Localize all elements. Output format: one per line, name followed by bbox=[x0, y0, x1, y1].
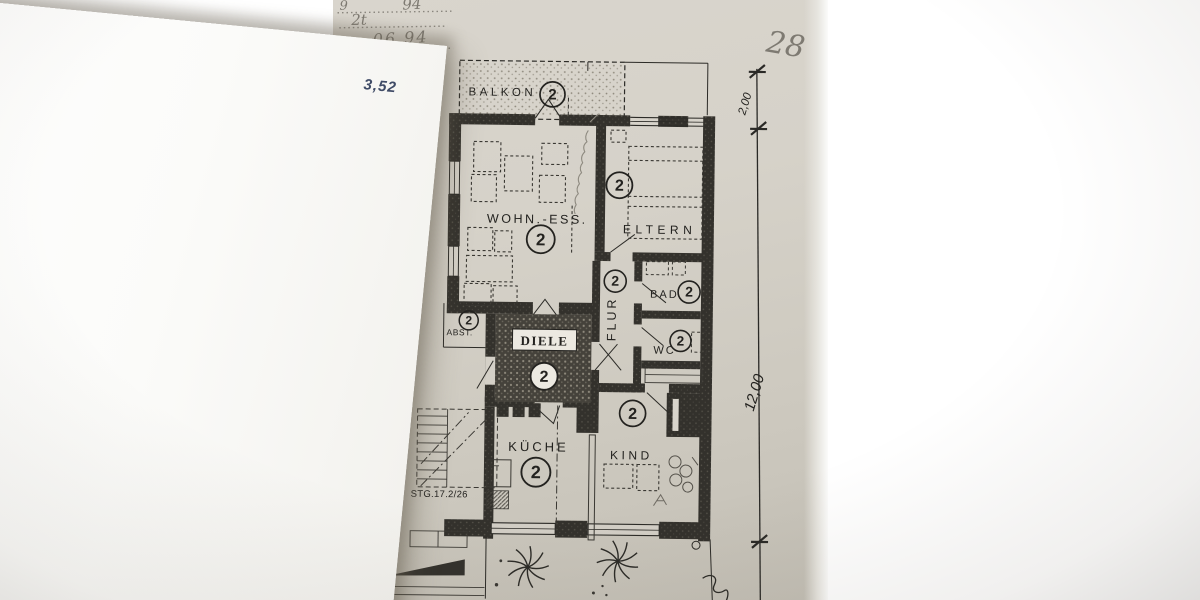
terrace bbox=[388, 530, 728, 600]
room-balkon: BALKON 2 bbox=[459, 60, 625, 120]
unit-badge-number: 2 bbox=[465, 313, 472, 327]
room-label-balkon: BALKON bbox=[468, 86, 536, 99]
unit-badge-number: 2 bbox=[615, 178, 624, 195]
handwriting-prefix: 9 bbox=[339, 0, 347, 14]
plant-icon bbox=[507, 546, 549, 588]
dimension-balcony: 2,00 bbox=[736, 91, 754, 117]
room-flur: FLUR 2 bbox=[603, 270, 626, 341]
room-label-wohn-ess: WOHN.-ESS. bbox=[487, 212, 588, 227]
unit-badge-number: 2 bbox=[611, 273, 619, 289]
handwriting-row2: 2t bbox=[350, 11, 368, 29]
kind-doodle bbox=[653, 456, 698, 507]
room-label-diele: DIELE bbox=[520, 333, 568, 349]
paper-printed-value: 3,52 bbox=[363, 76, 398, 96]
unit-badge-number: 2 bbox=[677, 333, 685, 348]
room-label-bad: BAD bbox=[650, 289, 679, 301]
overlapping-paper-sheet: 3,52 bbox=[0, 0, 447, 600]
wall-wedge bbox=[389, 558, 465, 576]
room-label-flur: FLUR bbox=[604, 296, 619, 341]
room-label-kueche: KÜCHE bbox=[508, 439, 569, 455]
unit-badge-number: 2 bbox=[536, 230, 546, 249]
dimension-building: 12,00 bbox=[741, 372, 768, 413]
room-bad: BAD 2 bbox=[646, 262, 700, 304]
kind-furniture bbox=[604, 464, 659, 491]
room-label-abst: ABST. bbox=[447, 327, 473, 337]
photo-of-floorplan: 9 94 2t 06.94 28 BALKON 2 bbox=[0, 0, 1200, 600]
room-diele: DIELE 2 bbox=[495, 314, 592, 403]
unit-badge-number: 2 bbox=[548, 86, 557, 103]
pencil-scribble bbox=[574, 131, 588, 214]
unit-badge-number: 2 bbox=[685, 284, 693, 300]
unit-badge-number: 2 bbox=[531, 462, 541, 482]
unit-badge-number: 2 bbox=[628, 406, 637, 423]
terrace-doodle bbox=[702, 575, 728, 600]
room-label-kind: KIND bbox=[610, 448, 653, 463]
dimension-line: 2,00 12,00 bbox=[730, 65, 774, 600]
room-label-eltern: ELTERN bbox=[623, 222, 697, 237]
room-wohn-ess: WOHN.-ESS. 2 bbox=[464, 141, 589, 306]
handwritten-corner-number: 28 bbox=[763, 24, 808, 65]
unit-badge-number: 2 bbox=[539, 369, 548, 386]
room-eltern: ELTERN 2 bbox=[606, 130, 703, 239]
plant-icon bbox=[596, 540, 638, 582]
stair-label: STG.17.2/26 bbox=[411, 489, 468, 501]
